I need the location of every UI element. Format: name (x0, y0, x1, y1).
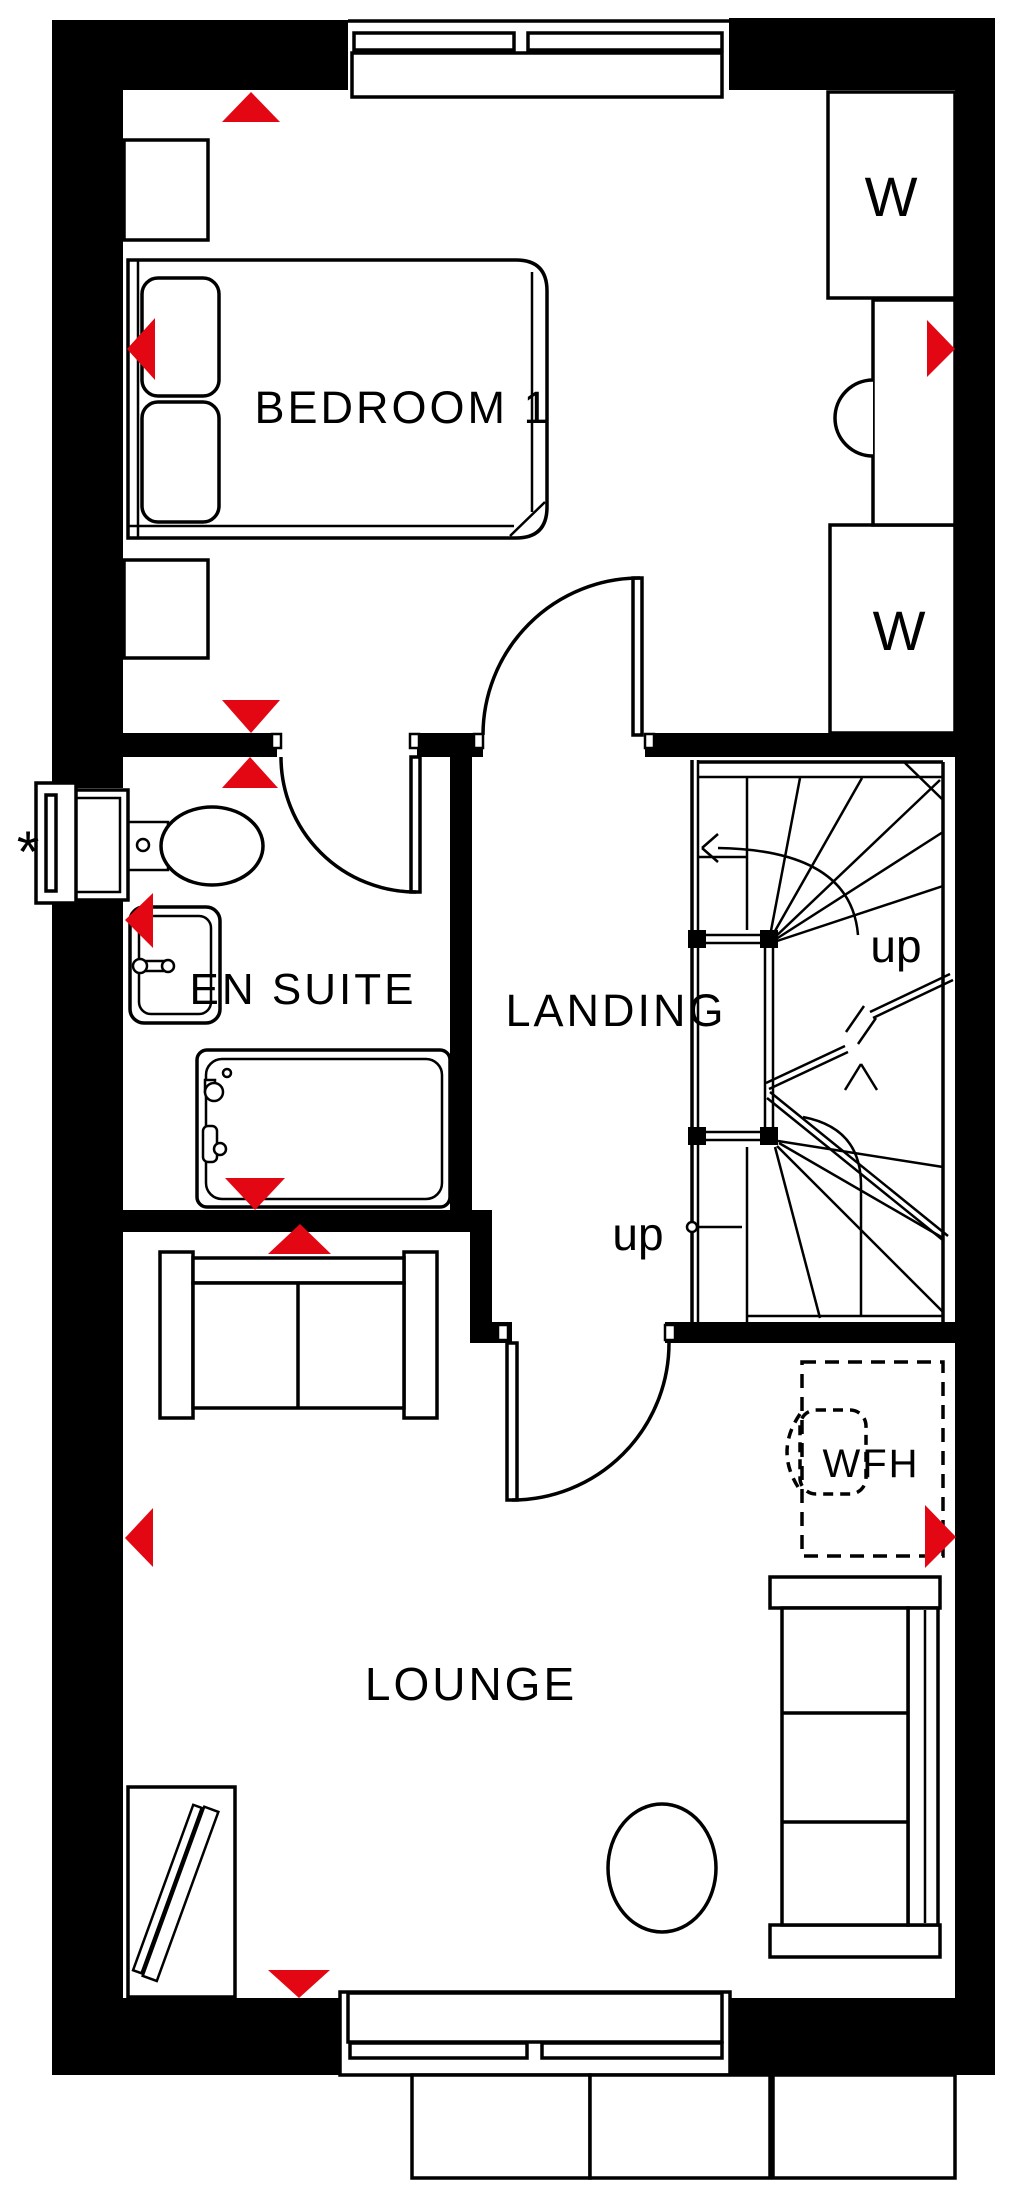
furniture-layer (64, 92, 955, 1997)
wardrobe-top-label: W (865, 165, 918, 228)
lounge-label: LOUNGE (365, 1658, 577, 1710)
door-bedroom (474, 578, 654, 748)
exterior-boxes (412, 2075, 955, 2178)
bedside-table (124, 560, 208, 658)
wall-bedroom-south-a (123, 733, 277, 757)
wall-bedroom-south-c (645, 733, 955, 757)
wfh-label: WFH (822, 1442, 919, 1486)
up-label-top: up (870, 920, 921, 972)
bedside-table (124, 140, 208, 240)
marker-down-lounge (268, 1970, 330, 1998)
sofa-three-seat (770, 1577, 940, 1957)
ensuite-window (36, 783, 76, 903)
ensuite-label: EN SUITE (190, 965, 417, 1014)
sofa-two-seat (160, 1252, 437, 1418)
wall-landing-west-upper (450, 757, 472, 1210)
window-note-asterisk: * (17, 820, 40, 885)
floor-plan-drawing: BEDROOM 1 EN SUITE LANDING LOUNGE W W up… (0, 0, 1024, 2204)
marker-left-lounge (125, 1508, 153, 1567)
door-ensuite (272, 734, 420, 892)
wall-left-lower (52, 900, 123, 2075)
wall-left-upper (52, 20, 123, 788)
marker-up-bedroom (222, 92, 280, 122)
landing-label: LANDING (505, 985, 726, 1036)
wall-lounge-north (665, 1322, 955, 1343)
wall-ensuite-south (123, 1210, 492, 1232)
wall-right (955, 18, 995, 2075)
wardrobe-bottom-label: W (873, 599, 926, 662)
chimney-strip (873, 300, 955, 525)
up-leader-dot (687, 1222, 697, 1232)
coffee-table (608, 1804, 716, 1932)
pillow (142, 402, 219, 522)
toilet (64, 790, 263, 900)
marker-up-ensuite-door (222, 757, 278, 788)
tv-unit (128, 1787, 235, 1997)
marker-down-ensuite-door (222, 700, 280, 733)
bedroom-label: BEDROOM 1 (254, 382, 551, 433)
wall-bottom-left (52, 1998, 340, 2075)
marker-right-lounge (925, 1505, 956, 1568)
stairs (687, 760, 953, 1322)
lounge-window (340, 1992, 730, 2075)
up-label-bottom: up (612, 1208, 663, 1260)
door-lounge (498, 1325, 675, 1500)
wall-bottom-right (730, 1998, 995, 2075)
wall-landing-west-lower (470, 1232, 492, 1343)
floor-plan-page: BEDROOM 1 EN SUITE LANDING LOUNGE W W up… (0, 0, 1024, 2204)
wall-light-semicircle (835, 380, 873, 456)
stair-newel (760, 1127, 778, 1145)
bedroom-window (348, 20, 729, 97)
